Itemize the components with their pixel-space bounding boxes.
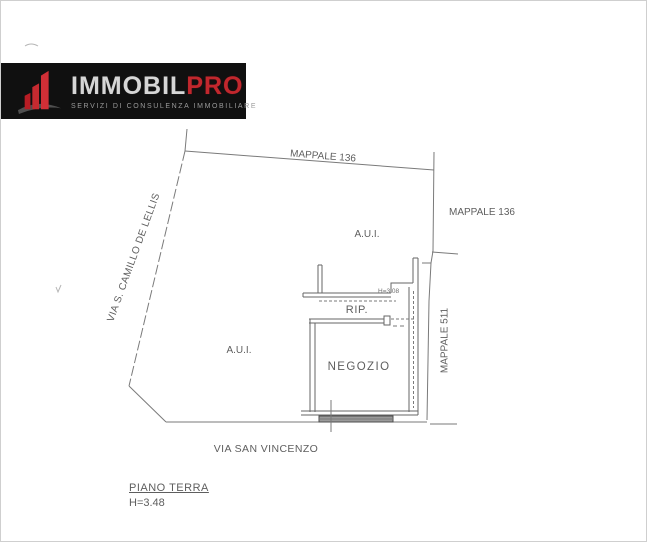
label-street-via-san-vincenzo: VIA SAN VINCENZO bbox=[206, 443, 326, 455]
scan-artifact bbox=[56, 285, 61, 292]
label-ceiling-height-small: H=3.08 bbox=[378, 288, 420, 295]
label-room-rip: RIP. bbox=[332, 304, 382, 316]
label-mappale-511: MAPPALE 511 bbox=[440, 291, 451, 391]
floor-title: PIANO TERRA bbox=[129, 482, 209, 494]
label-aui-lower: A.U.I. bbox=[209, 345, 269, 356]
scanned-floorplan-page: IMMOBILPRO SERVIZI DI CONSULENZA IMMOBIL… bbox=[0, 0, 647, 542]
label-mappale-right: MAPPALE 136 bbox=[449, 207, 547, 218]
scan-artifact bbox=[25, 44, 38, 46]
label-aui-upper: A.U.I. bbox=[337, 229, 397, 240]
door-jamb bbox=[384, 316, 390, 325]
label-room-negozio: NEGOZIO bbox=[319, 361, 399, 373]
building-walls bbox=[301, 258, 418, 415]
floorplan-drawing bbox=[1, 1, 647, 542]
floor-height: H=3.48 bbox=[129, 497, 165, 509]
